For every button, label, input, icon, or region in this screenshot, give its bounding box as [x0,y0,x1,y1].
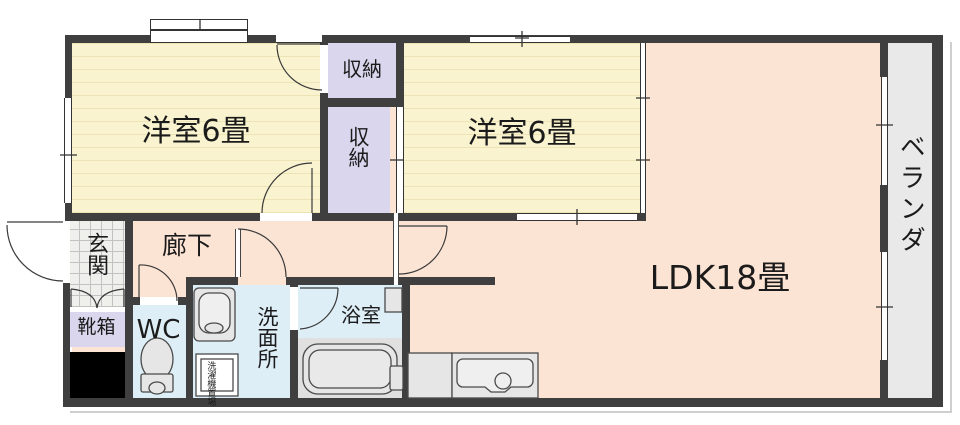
shadow-line-right [950,42,952,412]
wall-bedroom2-corner [637,213,646,221]
wall-veranda-upper [880,43,888,77]
label-ldk: LDK18畳 [620,261,820,296]
wall-washroom-top-right [286,277,495,285]
label-laundry-line1: 洗濯機 [205,361,215,388]
opening-bedroom1 [260,213,312,221]
door-arc-entrance [7,225,63,281]
window-ldk-veranda-lower [881,252,888,360]
label-bedroom1: 洋室6畳 [96,116,296,148]
wall-bathroom-right [402,277,410,398]
shadow-line-bottom [70,411,952,413]
wall-bedroom2-bottom [399,213,517,221]
wall-veranda-mid [880,185,888,252]
wall-closet-bottom [312,213,393,221]
opening-hallway-ldk [393,213,399,285]
label-veranda: ベランダ [896,133,923,257]
window-ldk-veranda-upper [881,77,888,185]
label-laundry-line2: 置場 [205,388,215,406]
wall-veranda-lower [880,360,888,398]
door-leaf-washroom [235,229,241,277]
bay-window [150,19,248,43]
wall-left-upper [65,37,72,98]
wall-wc-top-right [178,297,186,305]
label-bedroom2: 洋室6畳 [422,118,622,150]
opening-wc [140,297,178,305]
opening-entrance [63,221,70,283]
wall-wc-top-left [133,297,140,305]
wall-genkan-right [125,221,133,398]
wall-between-closets [328,98,396,107]
bay-window-mid-line [150,29,248,31]
window-bedroom2-top [470,36,570,43]
label-closet-upper: 収納 [327,59,397,80]
wall-closet-upper-right [396,43,404,107]
label-laundry: 洗濯機置場 [203,361,217,391]
label-genkan: 玄関 [84,232,107,276]
label-shoe-box: 靴箱 [68,318,125,338]
pillar-shaft [70,352,125,398]
label-washroom: 洗面所 [256,306,278,369]
window-bedroom1-left [64,98,72,203]
wall-bottom [63,398,943,407]
bathroom-wet-floor [298,338,402,398]
opening-bathroom [290,287,298,330]
sliding-door-bedroom2 [517,213,637,221]
wall-bedroom1-bottom [65,213,260,221]
partition-bedroom2-ldk [640,43,646,213]
label-wc: WC [131,317,186,344]
opening-closet-upper-leaf [276,35,322,43]
wall-washroom-top-left [186,277,238,285]
label-bathroom: 浴室 [330,305,392,326]
sliding-door-closet-lower [396,107,404,213]
wall-right [932,35,943,407]
wall-wc-washroom [186,277,193,398]
wall-left-lower [63,283,70,398]
label-closet-lower: 収納 [347,126,369,168]
label-hallway: 廊下 [147,233,227,259]
floor-plan: 洋室6畳 洋室6畳 LDK18畳 収納 収納 玄関 靴箱 廊下 WC 洗面所 浴… [0,0,960,425]
